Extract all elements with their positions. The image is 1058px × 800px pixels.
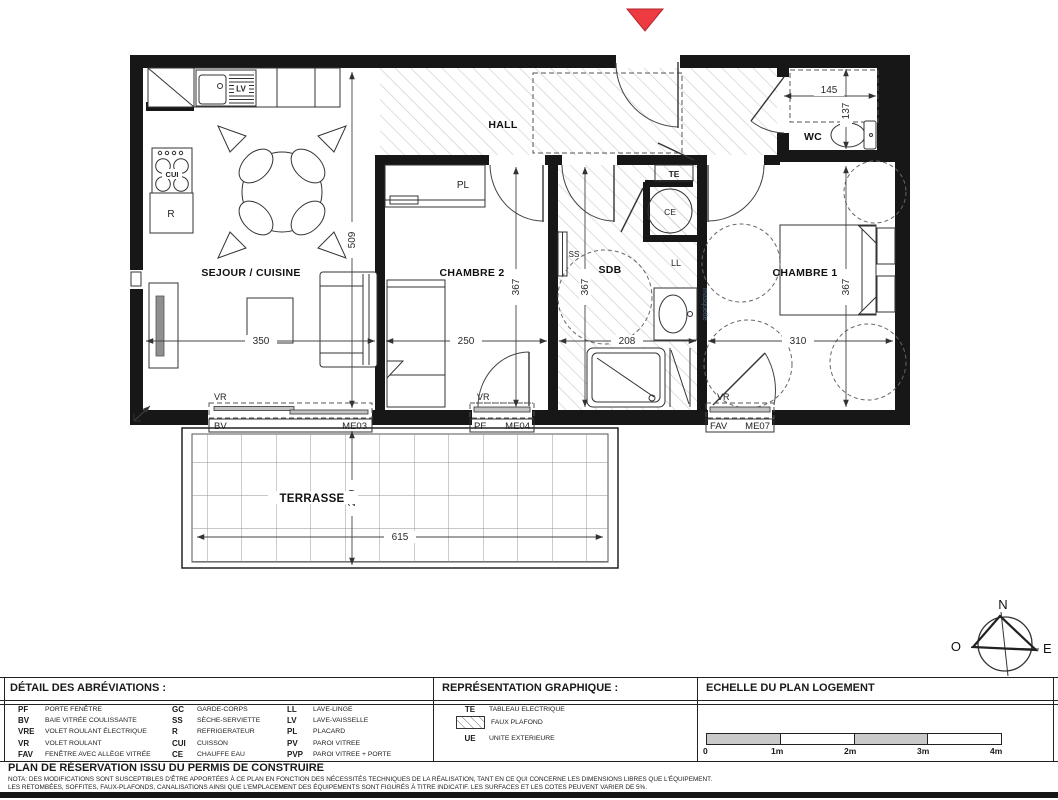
room-label-wc: WC xyxy=(804,131,822,143)
abbreviation-row: CECHAUFFE EAU xyxy=(172,749,260,760)
abbreviation-row: FAVFENÊTRE AVEC ALLÈGE VITRÉE xyxy=(18,749,151,760)
room-label-sejour: SEJOUR / CUISINE xyxy=(201,267,300,279)
floor-plan-drawing: LV CUI R xyxy=(0,0,1058,676)
abbr-label: FENÊTRE AVEC ALLÈGE VITRÉE xyxy=(45,751,151,758)
scale-segment xyxy=(707,734,780,744)
window-sejour: VR BV ME03 xyxy=(209,392,372,432)
compass-west: O xyxy=(951,639,961,654)
dim-chambre2-width: 250 xyxy=(458,336,475,347)
graphics-title: REPRÉSENTATION GRAPHIQUE : xyxy=(442,682,618,694)
scale-segment xyxy=(780,734,854,744)
dishwasher-label: LV xyxy=(236,85,246,94)
graphics-row-ue: UE UNITE EXTERIEURE xyxy=(455,732,555,744)
dim-chambre1-width: 310 xyxy=(790,336,807,347)
nightstand xyxy=(877,276,895,312)
abbr-label: SÈCHE-SERVIETTE xyxy=(197,717,260,724)
abbr: CUI xyxy=(172,739,197,748)
abbr-label: GARDE-CORPS xyxy=(197,706,248,713)
abbr: PV xyxy=(287,739,313,748)
abbr-label: CUISSON xyxy=(197,740,228,747)
abbr-label: PORTE FENÊTRE xyxy=(45,706,102,713)
scale-tick-1m: 1m xyxy=(771,746,783,756)
abbreviation-column-3: LLLAVE-LINGE LVLAVE-VAISSELLE PLPLACARD … xyxy=(287,704,391,760)
abbr: LL xyxy=(287,705,313,714)
abbr: VRE xyxy=(18,727,45,736)
nightstand xyxy=(877,228,895,264)
shutter-label: VR xyxy=(717,392,730,402)
room-label-sdb: SDB xyxy=(598,264,621,276)
abbreviation-row: RREFRIGERATEUR xyxy=(172,726,260,737)
dim-terrasse-width: 615 xyxy=(392,532,409,543)
ll-label: LL xyxy=(671,258,681,268)
compass-north: N xyxy=(998,597,1007,612)
abbr-label: LAVE-VAISSELLE xyxy=(313,717,368,724)
toilet-icon xyxy=(831,121,876,149)
scale-tick-2m: 2m xyxy=(844,746,856,756)
abbr: R xyxy=(172,727,197,736)
legend-divider-1 xyxy=(433,677,434,762)
legend-border-left xyxy=(4,677,5,762)
compass-east: E xyxy=(1043,641,1052,656)
abbreviation-row: PFPORTE FENÊTRE xyxy=(18,704,151,715)
dining-table xyxy=(218,126,346,258)
abbreviation-row: BVBAIE VITRÉE COULISSANTE xyxy=(18,715,151,726)
faux-plafond-label: FAUX PLAFOND xyxy=(491,719,543,726)
abbr: LV xyxy=(287,716,313,725)
te-label: TE xyxy=(669,169,680,179)
window-ref-label: ME07 xyxy=(745,421,770,432)
abbr: SS xyxy=(172,716,197,725)
entrance-marker-icon xyxy=(627,9,663,31)
te-symbol-label: TABLEAU ELECTRIQUE xyxy=(489,706,565,713)
abbreviation-row: LLLAVE-LINGE xyxy=(287,704,391,715)
abbreviation-row: PVPAROI VITREE xyxy=(287,738,391,749)
abbreviation-column-1: PFPORTE FENÊTRE BVBAIE VITRÉE COULISSANT… xyxy=(18,704,151,760)
window-type-label: BV xyxy=(214,421,227,432)
graphics-row-faux-plafond: FAUX PLAFOND xyxy=(455,716,543,728)
graphics-row-te: TE TABLEAU ELECTRIQUE xyxy=(455,703,565,715)
abbreviation-row: PLPLACARD xyxy=(287,726,391,737)
tv-icon xyxy=(156,296,164,356)
abbreviation-row: CUICUISSON xyxy=(172,738,260,749)
abbr: VR xyxy=(18,739,45,748)
scale-bar xyxy=(706,733,1002,745)
dim-sdb-height: 367 xyxy=(580,278,591,295)
compass-rose: N O E S xyxy=(951,597,1052,676)
footer-nota-line1: NOTA: DES MODIFICATIONS SONT SUSCEPTIBLE… xyxy=(8,776,712,783)
abbreviation-row: VRVOLET ROULANT xyxy=(18,738,151,749)
abbr-label: LAVE-LINGE xyxy=(313,706,353,713)
placard-label: PL xyxy=(457,180,470,191)
room-label-terrasse: TERRASSE xyxy=(279,493,344,505)
scale-segment xyxy=(927,734,1001,744)
abbreviation-row: SSSÈCHE-SERVIETTE xyxy=(172,715,260,726)
living-furniture xyxy=(149,272,377,368)
window-type-label: FAV xyxy=(710,421,728,432)
room-label-chambre1: CHAMBRE 1 xyxy=(772,267,837,279)
footer-title: PLAN DE RÉSERVATION ISSU DU PERMIS DE CO… xyxy=(8,762,324,774)
abbr: FAV xyxy=(18,750,45,759)
abbr: PF xyxy=(18,705,45,714)
abbr-label: VOLET ROULANT ÉLECTRIQUE xyxy=(45,728,147,735)
washbasin-note: masquette xyxy=(701,288,708,321)
window-ref-label: ME03 xyxy=(342,421,367,432)
window-type-label: PF xyxy=(474,421,486,432)
abbr: BV xyxy=(18,716,45,725)
scale-title: ECHELLE DU PLAN LOGEMENT xyxy=(706,682,875,694)
dim-wc-height: 137 xyxy=(841,102,852,119)
shutter-label: VR xyxy=(214,392,227,402)
legend-border-right xyxy=(1053,677,1054,762)
ue-symbol: UE xyxy=(455,734,485,743)
abbr-label: CHAUFFE EAU xyxy=(197,751,245,758)
abbr-label: BAIE VITRÉE COULISSANTE xyxy=(45,717,137,724)
single-bed xyxy=(387,280,445,407)
legend-divider-2 xyxy=(697,677,698,762)
abbr: PVP xyxy=(287,750,313,759)
abbr-label: PLACARD xyxy=(313,728,345,735)
abbreviations-title: DÉTAIL DES ABRÉVIATIONS : xyxy=(10,682,166,694)
abbreviation-row: PVPPAROI VITREE + PORTE xyxy=(287,749,391,760)
abbr: CE xyxy=(172,750,197,759)
placard xyxy=(385,165,485,207)
scale-tick-0: 0 xyxy=(703,746,708,756)
scale-segment xyxy=(854,734,928,744)
scale-tick-3m: 3m xyxy=(917,746,929,756)
ue-symbol-label: UNITE EXTERIEURE xyxy=(489,735,555,742)
terrace xyxy=(182,428,618,568)
abbr-label: PAROI VITREE + PORTE xyxy=(313,751,391,758)
window-chambre1: VR FAV ME07 xyxy=(706,392,774,432)
ss-label: SS xyxy=(569,250,580,259)
fridge-label: R xyxy=(167,209,174,220)
hob-label: CUI xyxy=(166,170,179,179)
abbreviation-row: LVLAVE-VAISSELLE xyxy=(287,715,391,726)
footer-bottom-bar xyxy=(0,792,1058,798)
legend-top-border xyxy=(0,677,1058,678)
room-label-hall: HALL xyxy=(488,119,517,131)
dim-sdb-width: 208 xyxy=(619,336,636,347)
shutter-label: VR xyxy=(477,392,490,402)
room-label-chambre2: CHAMBRE 2 xyxy=(439,267,504,279)
dim-chambre1-height: 367 xyxy=(841,278,852,295)
faux-plafond-hatch-swatch xyxy=(456,716,485,729)
floor-plan-page: LV CUI R xyxy=(0,0,1058,800)
dim-chambre2-height: 367 xyxy=(511,278,522,295)
te-symbol: TE xyxy=(455,705,485,714)
abbr-label: VOLET ROULANT xyxy=(45,740,102,747)
abbreviation-row: GCGARDE-CORPS xyxy=(172,704,260,715)
footer-nota-line2: LES RETOMBÉES, SOFFITES, FAUX-PLAFONDS, … xyxy=(8,784,647,791)
abbreviation-row: VREVOLET ROULANT ÉLECTRIQUE xyxy=(18,726,151,737)
scale-tick-4m: 4m xyxy=(990,746,1002,756)
dim-sejour-width: 350 xyxy=(253,336,270,347)
ce-label: CE xyxy=(664,207,676,217)
dim-wc-width: 145 xyxy=(821,85,838,96)
abbr: PL xyxy=(287,727,313,736)
abbr: GC xyxy=(172,705,197,714)
window-ref-label: ME04 xyxy=(505,421,530,432)
window-chambre2: VR PF ME04 xyxy=(470,392,534,432)
abbr-label: REFRIGERATEUR xyxy=(197,728,255,735)
abbr-label: PAROI VITREE xyxy=(313,740,360,747)
abbreviation-column-2: GCGARDE-CORPS SSSÈCHE-SERVIETTE RREFRIGE… xyxy=(172,704,260,760)
dim-sejour-height: 509 xyxy=(347,231,358,248)
washbasin-counter xyxy=(654,288,697,340)
